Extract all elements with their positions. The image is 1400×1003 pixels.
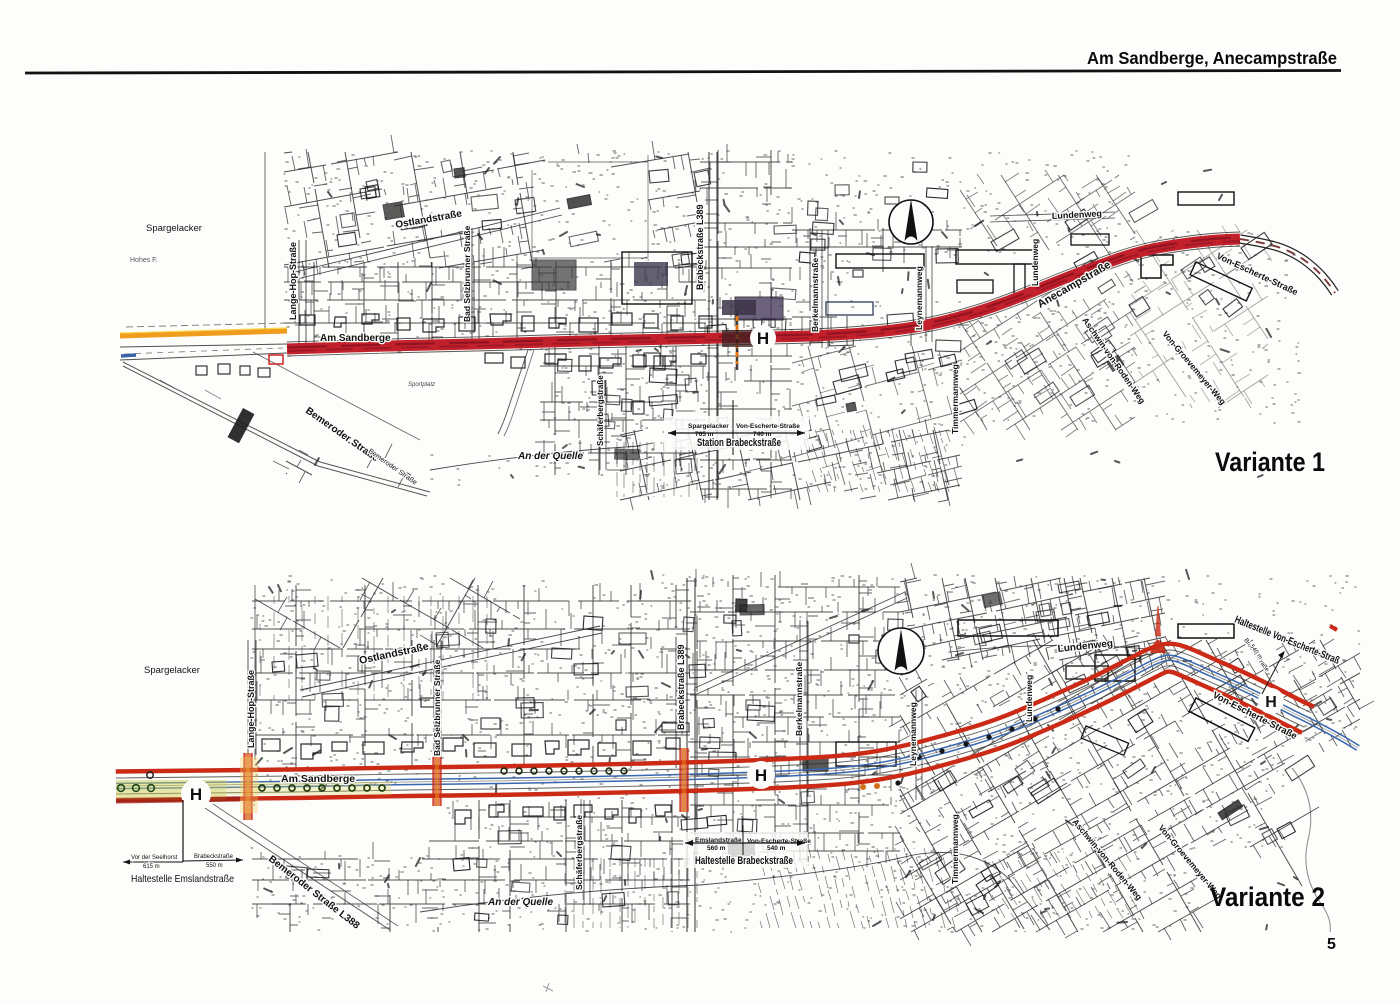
svg-text:H: H [755, 766, 767, 785]
svg-text:615 m: 615 m [143, 864, 160, 870]
svg-text:Brabeckstraße L389: Brabeckstraße L389 [676, 644, 686, 730]
svg-text:Am Sandberge: Am Sandberge [320, 333, 391, 344]
svg-text:Variante 2: Variante 2 [1210, 882, 1325, 912]
svg-text:H: H [190, 785, 202, 804]
svg-text:Timmermannweg: Timmermannweg [950, 364, 960, 434]
svg-text:Von-Escherte-Straße: Von-Escherte-Straße [736, 423, 800, 430]
svg-text:Lange-Hop-Straße: Lange-Hop-Straße [288, 242, 298, 320]
svg-text:Lange-Hop-Straße: Lange-Hop-Straße [246, 670, 256, 748]
svg-text:Haltestelle Emslandstraße: Haltestelle Emslandstraße [131, 873, 234, 885]
svg-text:540 m: 540 m [767, 845, 786, 852]
svg-text:Vor der Seelhorst: Vor der Seelhorst [131, 855, 178, 861]
svg-text:Berkelmannstraße: Berkelmannstraße [810, 258, 820, 332]
svg-text:Brabeckstraße L389: Brabeckstraße L389 [695, 204, 705, 290]
svg-text:Spargelacker: Spargelacker [146, 223, 202, 234]
svg-text:Variante 1: Variante 1 [1215, 447, 1325, 477]
svg-text:Hohes F.: Hohes F. [130, 257, 158, 264]
svg-text:Lundenweg: Lundenweg [1030, 239, 1040, 286]
svg-text:Bad Selzbrunner Straße: Bad Selzbrunner Straße [462, 225, 472, 322]
svg-text:Schäferbergstraße: Schäferbergstraße [574, 815, 584, 890]
svg-text:Bad Selzbrunner Straße: Bad Selzbrunner Straße [432, 659, 442, 756]
svg-text:Timmermannweg: Timmermannweg [950, 814, 960, 884]
svg-text:Leynemannweg: Leynemannweg [908, 702, 918, 766]
svg-text:Leynemannweg: Leynemannweg [914, 266, 924, 330]
svg-text:An der Quelle: An der Quelle [487, 897, 553, 908]
svg-text:Station Brabeckstraße: Station Brabeckstraße [697, 437, 781, 449]
svg-text:Am Sandberge: Am Sandberge [281, 773, 355, 785]
svg-text:Schäferbergstraße: Schäferbergstraße [596, 375, 605, 446]
svg-text:Spargelacker: Spargelacker [144, 665, 200, 676]
svg-text:Haltestelle Brabeckstraße: Haltestelle Brabeckstraße [695, 855, 793, 867]
svg-text:Am Sandberge, Anecampstraße: Am Sandberge, Anecampstraße [1087, 48, 1337, 68]
svg-text:560 m: 560 m [707, 845, 726, 852]
svg-text:550 m: 550 m [206, 863, 223, 869]
svg-text:H: H [1265, 694, 1277, 711]
svg-text:5: 5 [1327, 936, 1336, 953]
svg-text:Sportplatz: Sportplatz [408, 382, 435, 388]
svg-text:An der Quelle: An der Quelle [517, 451, 583, 462]
svg-text:Brabeckstraße: Brabeckstraße [194, 854, 234, 860]
svg-text:Lundenweg: Lundenweg [1024, 675, 1034, 722]
svg-text:H: H [757, 329, 769, 348]
svg-text:Berkelmannstraße: Berkelmannstraße [794, 662, 804, 736]
svg-text:Spargelacker: Spargelacker [688, 423, 729, 430]
